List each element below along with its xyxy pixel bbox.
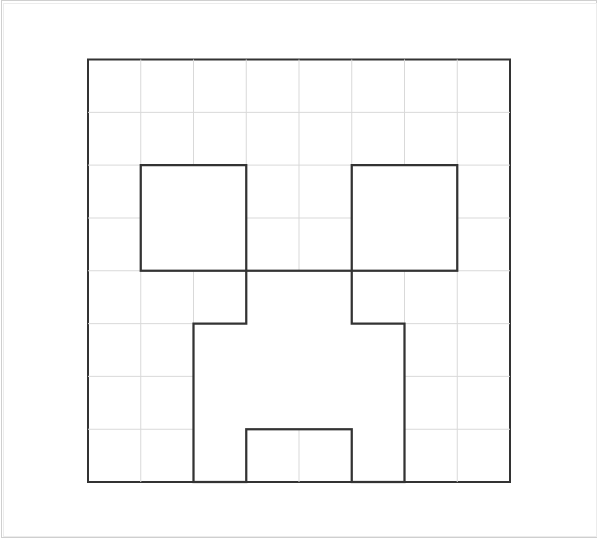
- right_eye: [352, 165, 458, 271]
- page: [0, 0, 600, 540]
- left_eye: [141, 165, 247, 271]
- creeper-face-drawing: [0, 0, 600, 540]
